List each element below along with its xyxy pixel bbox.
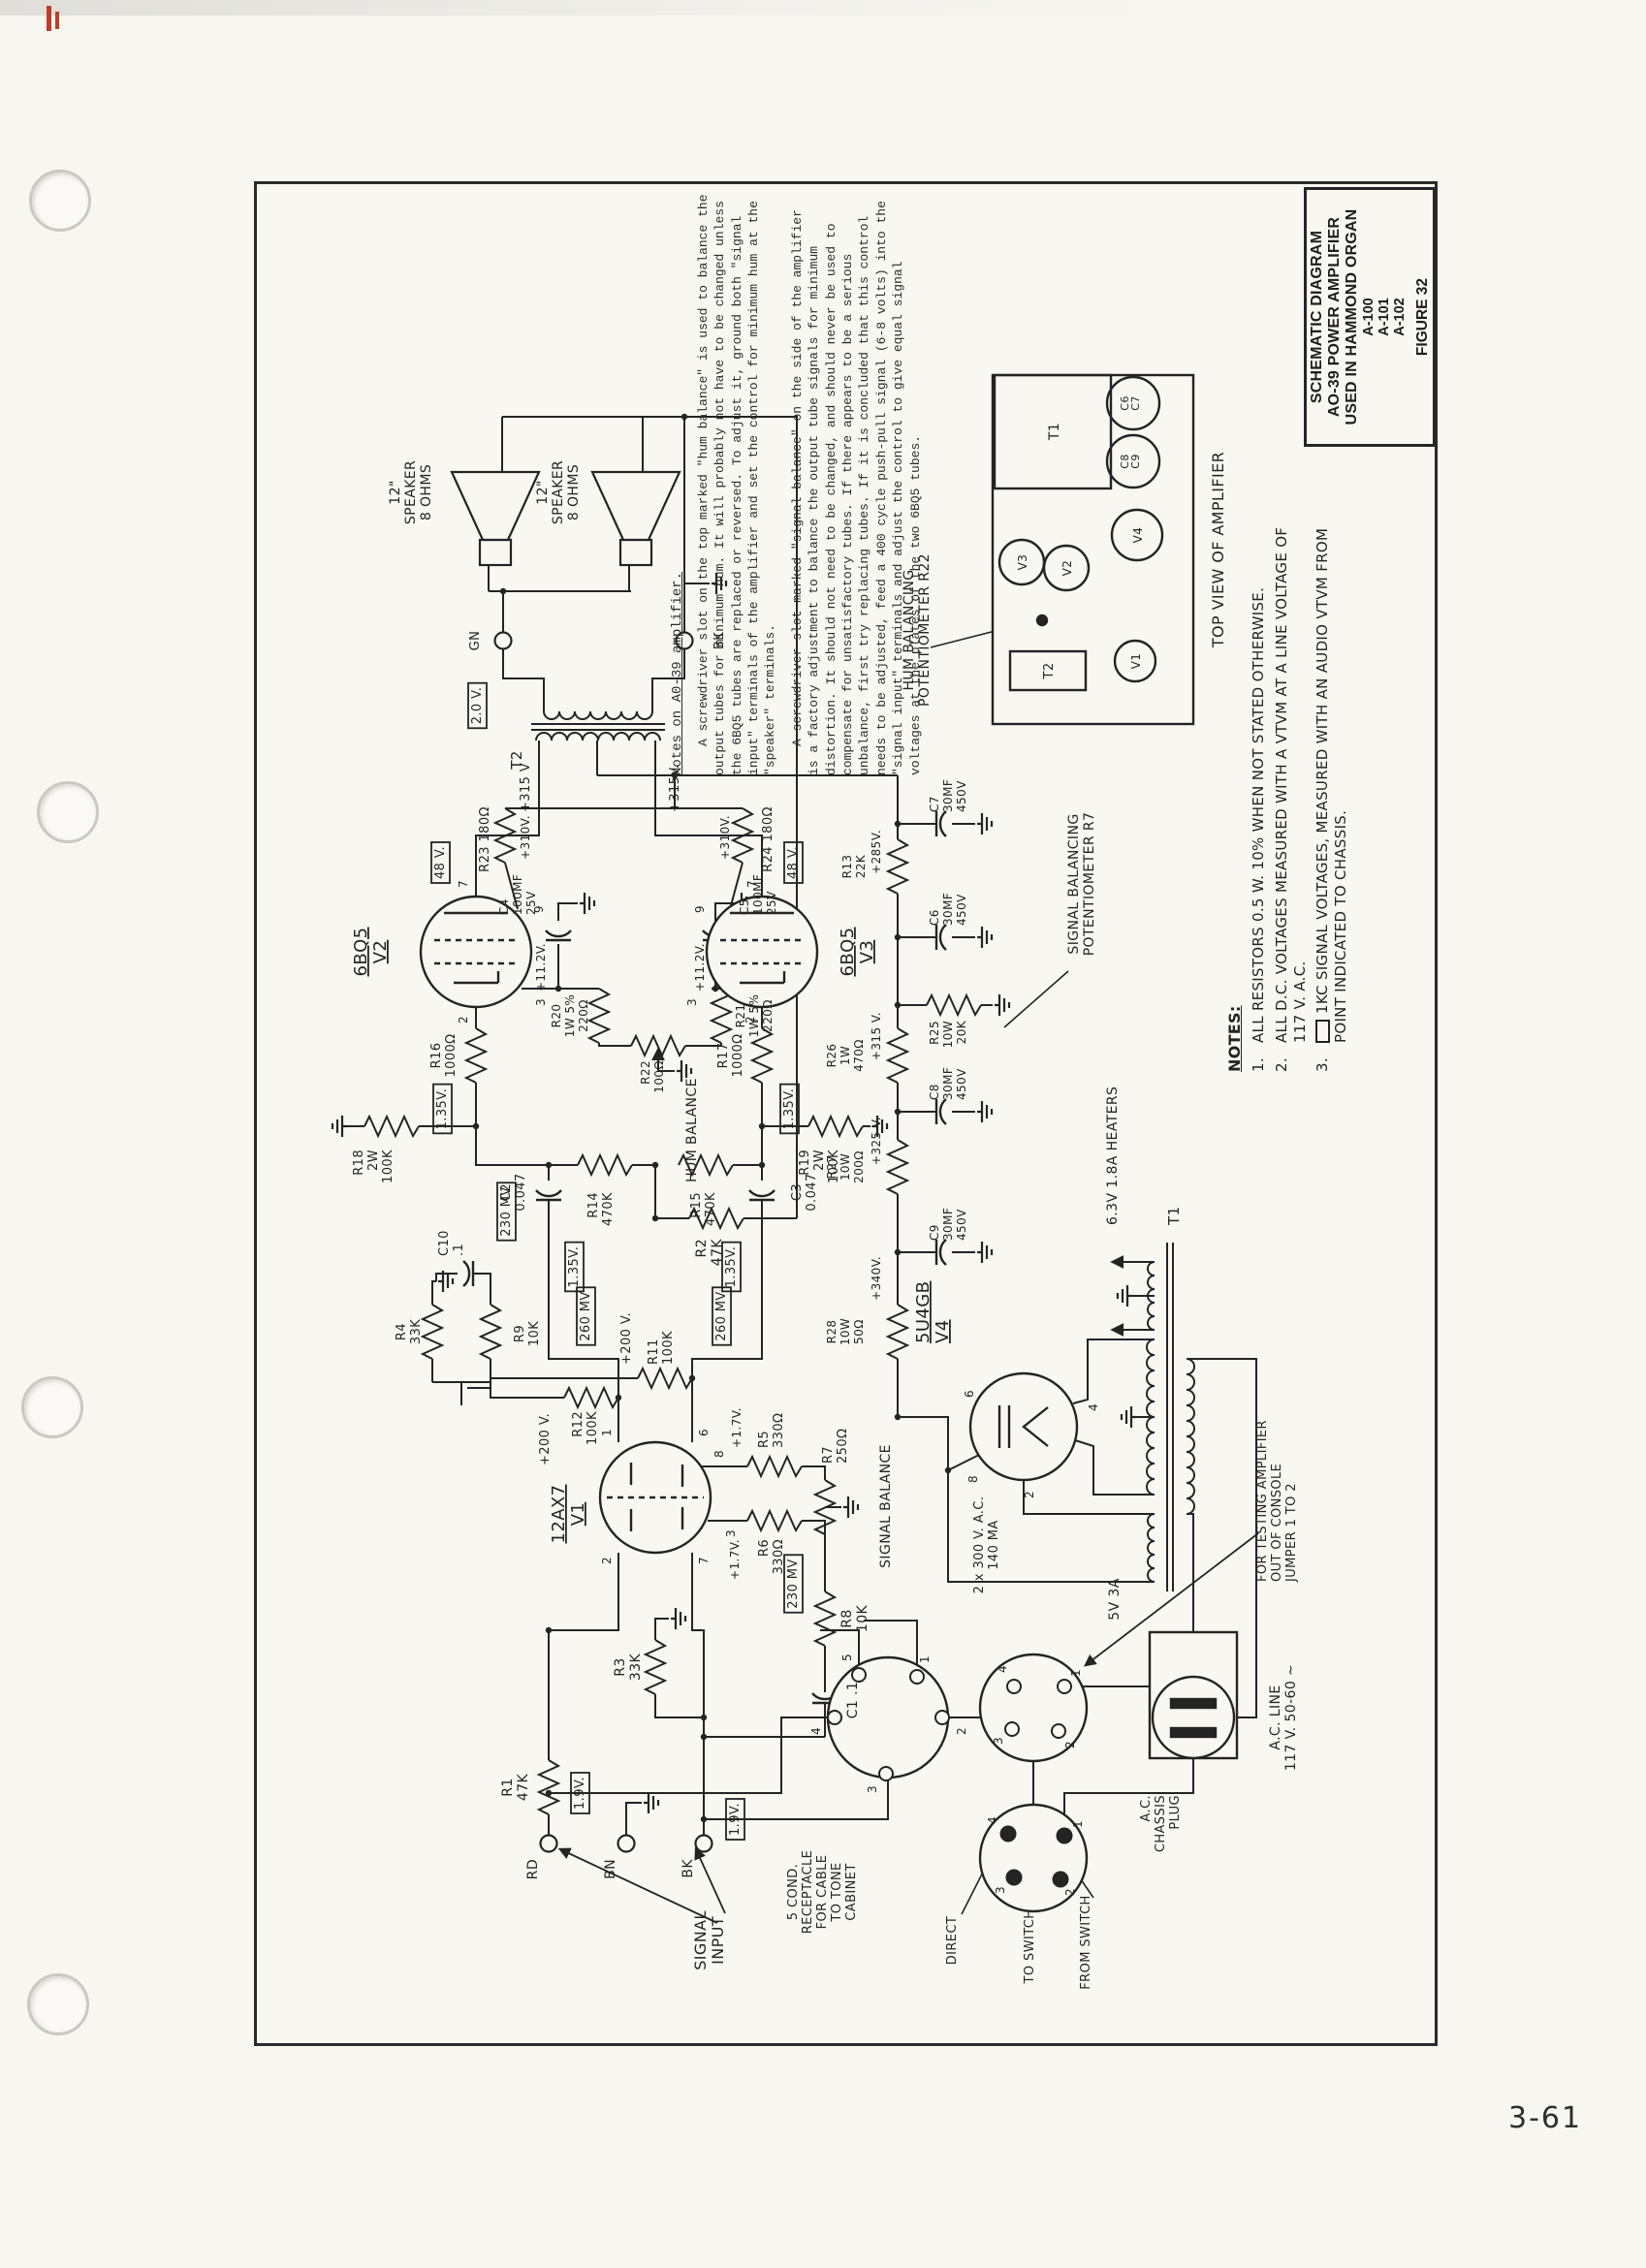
signal-voltage-box-icon (1315, 1020, 1330, 1043)
r5-label: R5330Ω (757, 1413, 786, 1448)
receptacle-pin (910, 1670, 924, 1684)
v4-pin2: 2 (1023, 1491, 1036, 1498)
resistor-r19 (808, 1117, 863, 1136)
v3-pin9: 9 (693, 905, 707, 913)
switch-pin (1001, 1827, 1016, 1842)
tv-v1: V1 (1129, 653, 1143, 670)
v2-screen-voltage: +310V. (519, 815, 532, 860)
schematic-sheet: SIGNALINPUTRDBNBK1.9V.1.9V.R147KR333KR81… (258, 186, 1432, 2037)
capacitor-c2 (536, 1190, 561, 1200)
r24-label: R24 180Ω (761, 806, 776, 872)
c9-label: C930MF450V (928, 1208, 968, 1241)
ground-icon (977, 1101, 992, 1122)
receptacle-pin5: 5 (840, 1654, 854, 1661)
page-number: 3-61 (1508, 2101, 1582, 2135)
receptacle-pin (852, 1668, 866, 1682)
resistor-r8 (815, 1591, 835, 1646)
ac-line-label: A.C. LINE117 V. 50-60 ~ (1268, 1664, 1299, 1771)
title-block: SCHEMATIC DIAGRAM AO-39 POWER AMPLIFIER … (1304, 187, 1436, 447)
punch-hole (29, 170, 91, 232)
service-notes-para2: A screwdriver slot marked "signal balanc… (789, 194, 924, 775)
punch-hole (27, 1973, 89, 2035)
connector-pin (1058, 1680, 1071, 1693)
v3-label: 6BQ5V3 (838, 927, 877, 976)
ground-icon (580, 893, 594, 914)
connector-pin2: 2 (1063, 1741, 1077, 1748)
v1-cathode1-voltage: +1.7V. (728, 1539, 742, 1580)
v1-pin2: 2 (600, 1557, 614, 1564)
signal-input-label: SIGNALINPUT (691, 1910, 727, 1970)
receptacle-pin3: 3 (866, 1785, 879, 1793)
value-1-35v-d: 1.35V. (782, 1088, 797, 1130)
c4-label: C4100MF25V (497, 874, 538, 915)
v2-cathode-voltage: +11.2V. (534, 943, 548, 992)
r3-label: R333K (613, 1653, 644, 1681)
terminal-rd (541, 1836, 557, 1852)
from-switch-label: FROM SWITCH (1079, 1895, 1093, 1989)
ac-plug-label: A.C.CHASSISPLUG (1139, 1795, 1183, 1852)
resistor-r6 (747, 1511, 802, 1530)
v2-pin2: 2 (457, 1016, 470, 1024)
v2-pin3: 3 (534, 998, 548, 1006)
tv-t1: T1 (1047, 423, 1062, 441)
r18-label: R182W100K (352, 1150, 396, 1183)
tv-t2: T2 (1042, 662, 1057, 679)
connector-pin1: 1 (1069, 1669, 1083, 1677)
speaker-1 (452, 472, 539, 565)
ground-icon (644, 1792, 658, 1813)
note-text: ALL RESISTORS 0.5 W. 10% WHEN NOT STATED… (1250, 587, 1268, 1043)
terminal-rd-label: RD (525, 1859, 541, 1879)
r7-label: R7250Ω (821, 1429, 850, 1464)
r8-label: R810K (839, 1604, 870, 1632)
note-text: ALL D.C. VOLTAGES MEASURED WITH A VTVM A… (1273, 515, 1310, 1043)
r16-label: R161000Ω (429, 1033, 459, 1077)
v3-pin3: 3 (685, 998, 699, 1006)
direct-label: DIRECT (945, 1916, 960, 1966)
t1-hv-label: 2 x 300 V. A.C.140 MA (972, 1496, 1001, 1594)
v3-screen-voltage: +310V. (718, 815, 732, 860)
resistor-r9 (481, 1305, 500, 1359)
value-48v-a: 48 V. (433, 846, 448, 879)
connector-pin (1052, 1724, 1065, 1738)
value-1-35v-b: 1.35V. (724, 1246, 739, 1288)
notes-list: NOTES: 1. ALL RESISTORS 0.5 W. 10% WHEN … (1225, 515, 1355, 1072)
value-260mv-b: 260 MV (714, 1291, 729, 1340)
capacitor-c3 (749, 1190, 775, 1200)
resistor-r11 (638, 1369, 692, 1388)
switch-pin3: 3 (994, 1886, 1007, 1894)
ground-icon (1118, 1285, 1132, 1307)
note-item: 3. 1KC SIGNAL VOLTAGES, MEASURED WITH AN… (1314, 515, 1350, 1072)
resistor-r26 (888, 1028, 907, 1083)
switch-pin2: 2 (1063, 1888, 1077, 1896)
capacitor-c4 (546, 930, 571, 940)
resistor-r18 (364, 1117, 419, 1136)
title-line: SCHEMATIC DIAGRAM (1309, 231, 1326, 403)
switch-pin1: 1 (1071, 1820, 1085, 1828)
r12-label: R12100K (571, 1411, 600, 1445)
terminal-bn (618, 1836, 635, 1852)
speaker1-label: 12"SPEAKER8 OHMS (388, 460, 434, 524)
r6-label: R6330Ω (757, 1539, 786, 1574)
r2-label: R247K (694, 1239, 725, 1267)
tv-v4: V4 (1131, 527, 1145, 544)
bplus-325: +325 V. (870, 1117, 883, 1165)
capacitor-c9 (936, 1240, 946, 1265)
v2-pin7: 7 (457, 880, 470, 888)
ground-icon (977, 813, 992, 835)
tube-v1 (600, 1442, 711, 1553)
capacitor-c6 (936, 925, 946, 950)
r20-label: R201W 5%220Ω (550, 994, 590, 1037)
v3-cathode-voltage: +11.2V. (693, 943, 707, 992)
model-number: A-102 (1392, 298, 1408, 336)
bplus-340: +340V. (870, 1256, 883, 1301)
resistor-r25 (927, 995, 981, 1015)
bplus-315: +315 V. (870, 1012, 883, 1060)
ground-icon (995, 994, 1009, 1016)
value-260mv-a: 260 MV (579, 1291, 593, 1340)
scanned-manual-page: SIGNALINPUTRDBNBK1.9V.1.9V.R147KR333KR81… (0, 0, 1646, 2268)
receptacle-pin1: 1 (918, 1655, 932, 1663)
ground-icon (332, 1116, 347, 1137)
c3-label: C30.047 (790, 1173, 819, 1211)
c5-label: C5100MF25V (738, 874, 778, 915)
v1-pin7: 7 (697, 1557, 711, 1564)
v2-label: 6BQ5V2 (351, 927, 391, 976)
hum-pot-dot (1037, 615, 1047, 625)
t1-label: T1 (1165, 1206, 1183, 1226)
connector-pin4: 4 (996, 1665, 1009, 1673)
c1-label: C1 .1 (845, 1682, 861, 1719)
r25-label: R2510W20K (928, 1020, 968, 1048)
capacitor-c7 (936, 811, 946, 836)
terminal-bn-label: BN (603, 1859, 618, 1879)
t1-5v-label: 5V 3A (1107, 1578, 1123, 1620)
receptacle-pin4: 4 (809, 1727, 823, 1735)
v2-plate-voltage: +315 V (519, 763, 533, 812)
resistor-r27 (888, 1140, 907, 1194)
r4-label: R433K (395, 1319, 424, 1344)
receptacle-label: 5 COND.RECEPTACLEFOR CABLETO TONECABINET (786, 1850, 859, 1935)
ground-icon (843, 1496, 858, 1518)
r28-label: R2810W50Ω (825, 1318, 866, 1345)
value-1-9v-b: 1.9V. (728, 1803, 743, 1836)
speaker2-label: 12"SPEAKER8 OHMS (535, 460, 582, 524)
service-notes-heading: Notes on A0-39 amplifier. (669, 194, 687, 775)
r17-label: R171000Ω (716, 1033, 745, 1077)
punch-hole (37, 781, 99, 843)
t2-label: T2 (508, 750, 525, 771)
resistor-r5 (747, 1457, 802, 1476)
receptacle-pin2: 2 (955, 1727, 968, 1735)
capacitor-c10 (463, 1261, 473, 1286)
resistor-r20 (589, 989, 609, 1043)
r1-label: R147K (500, 1773, 531, 1801)
note-text-inner: 1KC SIGNAL VOLTAGES, MEASURED WITH AN AU… (1314, 528, 1349, 1043)
model-number: A-100 (1361, 298, 1377, 336)
note-number: 3. (1314, 1043, 1350, 1072)
title-line: USED IN HAMMOND ORGAN (1344, 209, 1361, 425)
switch-pin (1007, 1871, 1022, 1885)
note-text: 1KC SIGNAL VOLTAGES, MEASURED WITH AN AU… (1314, 515, 1350, 1043)
r15-label: R15470K (689, 1192, 718, 1226)
terminal-bk (696, 1836, 712, 1852)
c8-label: C830MF450V (928, 1067, 968, 1100)
signal-pot-label: SIGNAL BALANCINGPOTENTIOMETER R7 (1066, 812, 1097, 957)
scan-mark (55, 12, 59, 29)
tv-c89: C8C9 (1119, 454, 1142, 468)
v4-label: 5U4GBV4 (913, 1281, 953, 1343)
r14-label: R14470K (586, 1192, 616, 1226)
value-2-0v: 2.0 V. (470, 687, 485, 725)
punch-hole (21, 1376, 83, 1438)
capacitor-c8 (936, 1099, 946, 1124)
resistor-r1 (539, 1760, 558, 1814)
to-switch-label: TO SWITCH (1023, 1909, 1037, 1985)
note-item: 1. ALL RESISTORS 0.5 W. 10% WHEN NOT STA… (1250, 515, 1268, 1072)
r23-label: R23 180Ω (478, 806, 492, 872)
r11-label: R11100K (647, 1331, 676, 1365)
ground-icon (977, 1242, 992, 1263)
value-1-9v-a: 1.9V. (573, 1777, 587, 1810)
model-number: A-101 (1377, 298, 1392, 336)
receptacle-pin (879, 1767, 893, 1780)
bplus-285: +285V. (870, 830, 883, 874)
ground-icon (671, 1608, 685, 1629)
connector-pin3: 3 (992, 1737, 1005, 1745)
v4-pin8: 8 (966, 1475, 980, 1483)
v4-pin4: 4 (1087, 1403, 1100, 1411)
r27-label: R2710W200Ω (825, 1150, 866, 1183)
top-view-of-amplifier (993, 375, 1193, 724)
tube-v4 (970, 1373, 1077, 1480)
c7-label: C730MF450V (928, 779, 968, 812)
service-notes: Notes on A0-39 amplifier. A screwdriver … (669, 194, 934, 775)
v4-pin6: 6 (963, 1390, 976, 1398)
connector-pin (1007, 1680, 1021, 1693)
notes-heading: NOTES: (1225, 515, 1244, 1072)
ac-chassis-plug (1150, 1632, 1237, 1758)
note-number: 1. (1250, 1043, 1268, 1072)
v1-pin6: 6 (697, 1429, 711, 1436)
speaker-2 (592, 472, 680, 565)
tv-c67: C6C7 (1119, 395, 1142, 410)
v1-pin3: 3 (724, 1529, 738, 1537)
v1-plate1-voltage: +200 V. (538, 1413, 553, 1465)
tv-v3: V3 (1016, 554, 1029, 571)
value-48v-b: 48 V. (786, 846, 801, 879)
terminal-gn (495, 633, 512, 649)
note-number: 2. (1273, 1043, 1310, 1072)
switch-pin (1054, 1873, 1068, 1887)
switch-pin4: 4 (986, 1816, 999, 1824)
figure-number: FIGURE 32 (1414, 278, 1432, 356)
value-230mv-b: 230 MV (786, 1559, 801, 1608)
v1-label: 12AX7V1 (549, 1484, 588, 1543)
receptacle-pin (935, 1711, 949, 1724)
resistor-r16 (466, 1028, 486, 1083)
value-1-35v-c: 1.35V. (435, 1088, 450, 1130)
v1-cathode2-voltage: +1.7V. (730, 1407, 744, 1448)
r9-label: R910K (513, 1321, 542, 1346)
scan-artifact (0, 0, 1646, 16)
scan-mark (47, 6, 51, 31)
r13-label: R1322K (840, 854, 868, 878)
connector-pin (1005, 1722, 1019, 1736)
value-1-35v-a: 1.35V. (567, 1246, 582, 1288)
note-item: 2. ALL D.C. VOLTAGES MEASURED WITH A VTV… (1273, 515, 1310, 1072)
terminal-gn-label: GN (468, 631, 483, 651)
receptacle-pin (828, 1711, 841, 1724)
tv-v2: V2 (1060, 560, 1074, 577)
resistor-r14 (578, 1155, 632, 1175)
v1-pin1: 1 (600, 1429, 614, 1436)
t1-heater-label: 6.3V 1.8A HEATERS (1105, 1087, 1121, 1225)
resistor-r3 (646, 1640, 665, 1694)
service-notes-para1: A screwdriver slot on the top marked "hu… (695, 194, 779, 775)
signal-balance-label: SIGNAL BALANCE (878, 1444, 894, 1568)
resistor-r13 (888, 839, 907, 894)
r22-label: R22100Ω (639, 1060, 666, 1093)
ground-icon (1122, 1406, 1136, 1428)
terminal-bk-label: BK (681, 1859, 696, 1878)
r26-label: R261W470Ω (825, 1039, 866, 1072)
resistor-r4 (423, 1305, 442, 1359)
c6-label: C630MF450V (928, 893, 968, 926)
resistor-r12 (564, 1388, 618, 1407)
v1-plate2-voltage: +200 V. (619, 1312, 634, 1365)
title-line: AO-39 POWER AMPLIFIER (1326, 217, 1344, 417)
ground-icon (977, 927, 992, 948)
testing-note: FOR TESTING AMPLIFIEROUT OF CONSOLEJUMPE… (1255, 1420, 1299, 1583)
hum-balance-label: HUM BALANCE (684, 1078, 700, 1182)
switch-pin (1058, 1829, 1072, 1843)
c10-label: C10.1 (437, 1230, 466, 1256)
v1-pin8: 8 (712, 1450, 726, 1458)
resistor-r28 (888, 1305, 907, 1359)
